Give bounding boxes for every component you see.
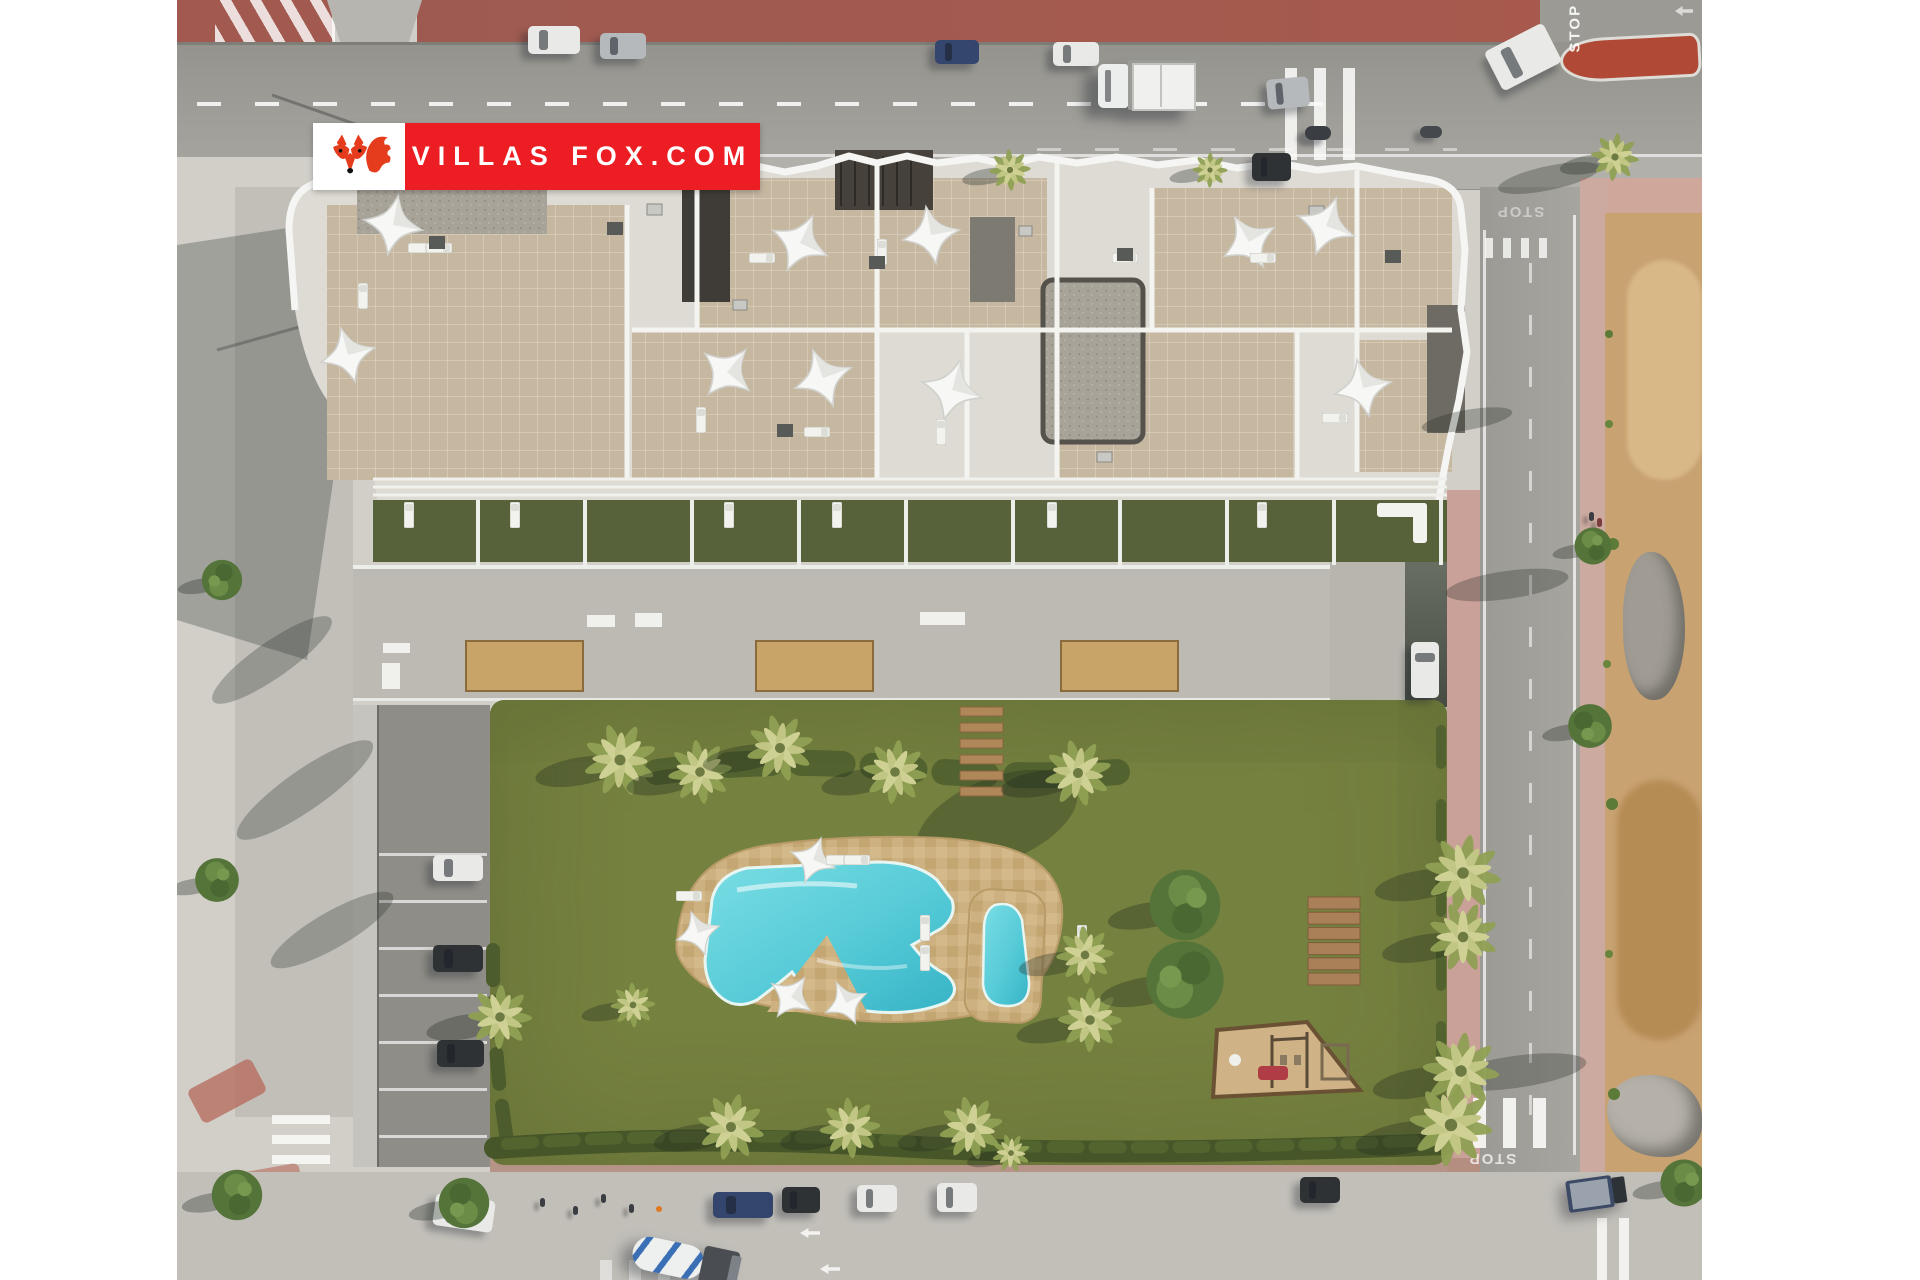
garden-bush bbox=[609, 981, 656, 1028]
fox-logo-icon bbox=[325, 129, 393, 185]
palm-tree bbox=[817, 1095, 883, 1161]
logo-text: VILLAS FOX.COM bbox=[412, 141, 754, 172]
round-tree bbox=[429, 1168, 500, 1239]
vegetation-layer bbox=[177, 0, 1702, 1280]
palm-tree bbox=[467, 984, 533, 1050]
round-tree bbox=[1565, 701, 1615, 751]
palm-tree bbox=[1192, 152, 1228, 188]
villas-fox-logo: VILLAS FOX.COM bbox=[313, 123, 760, 190]
round-tree bbox=[1143, 938, 1228, 1023]
round-tree bbox=[1568, 521, 1618, 571]
logo-box bbox=[313, 123, 405, 190]
round-tree bbox=[201, 1159, 272, 1230]
aerial-photo: STOP STOP STOP bbox=[177, 0, 1702, 1280]
round-tree bbox=[186, 849, 248, 911]
logo-banner: VILLAS FOX.COM bbox=[405, 123, 760, 190]
aerial-render-page: STOP STOP STOP bbox=[0, 0, 1920, 1280]
round-tree bbox=[197, 555, 246, 604]
round-tree bbox=[1135, 855, 1234, 954]
palm-tree bbox=[1588, 130, 1641, 183]
